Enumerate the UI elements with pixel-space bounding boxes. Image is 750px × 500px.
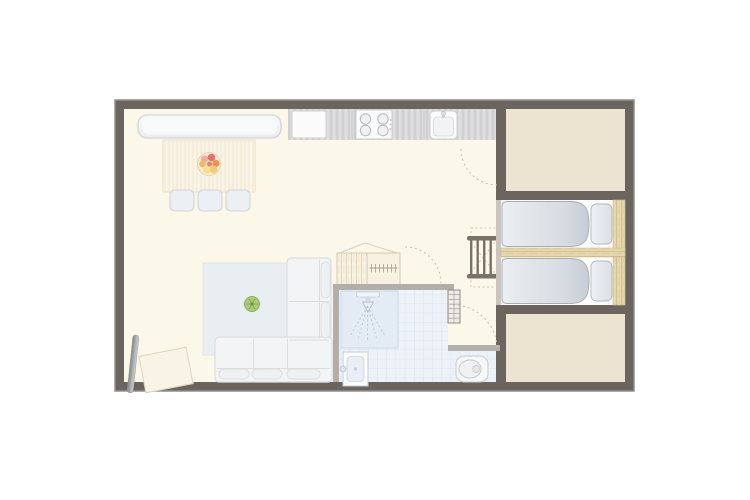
potted-plant-icon: [245, 297, 260, 312]
floor-plan-canvas: [0, 0, 750, 500]
pillow: [591, 261, 612, 301]
dining-chairs: [170, 190, 250, 211]
shower: [341, 291, 398, 348]
dining-chair: [226, 190, 250, 211]
toilet: [456, 356, 488, 382]
pillow: [591, 204, 612, 244]
kitchen-sink: [430, 111, 457, 139]
alcove-opening-trim: [496, 200, 501, 305]
basin-tap-icon: [340, 366, 346, 372]
bench-cushion: [142, 119, 277, 135]
fruit-bowl: [198, 153, 221, 176]
divider-shelf-grain: [501, 248, 625, 257]
dining-chair: [170, 190, 194, 211]
drain-icon: [354, 367, 357, 370]
radiator-icon: [448, 290, 460, 323]
washbasin: [340, 352, 368, 386]
floor-plan-page: [0, 0, 750, 500]
annex-room-top-floor: [506, 109, 625, 191]
bed-duvet: [502, 202, 589, 247]
dining-chair: [198, 190, 222, 211]
shower-bar-icon: [357, 292, 380, 297]
wardrobe-shelf-grain: [338, 254, 366, 285]
bed-duvet: [502, 259, 589, 304]
cooktop: [356, 110, 392, 139]
annex-room-bottom-floor: [506, 314, 625, 382]
sleeping-alcove: [496, 200, 625, 305]
shower-stem: [366, 297, 371, 301]
cutting-board: [292, 111, 326, 138]
